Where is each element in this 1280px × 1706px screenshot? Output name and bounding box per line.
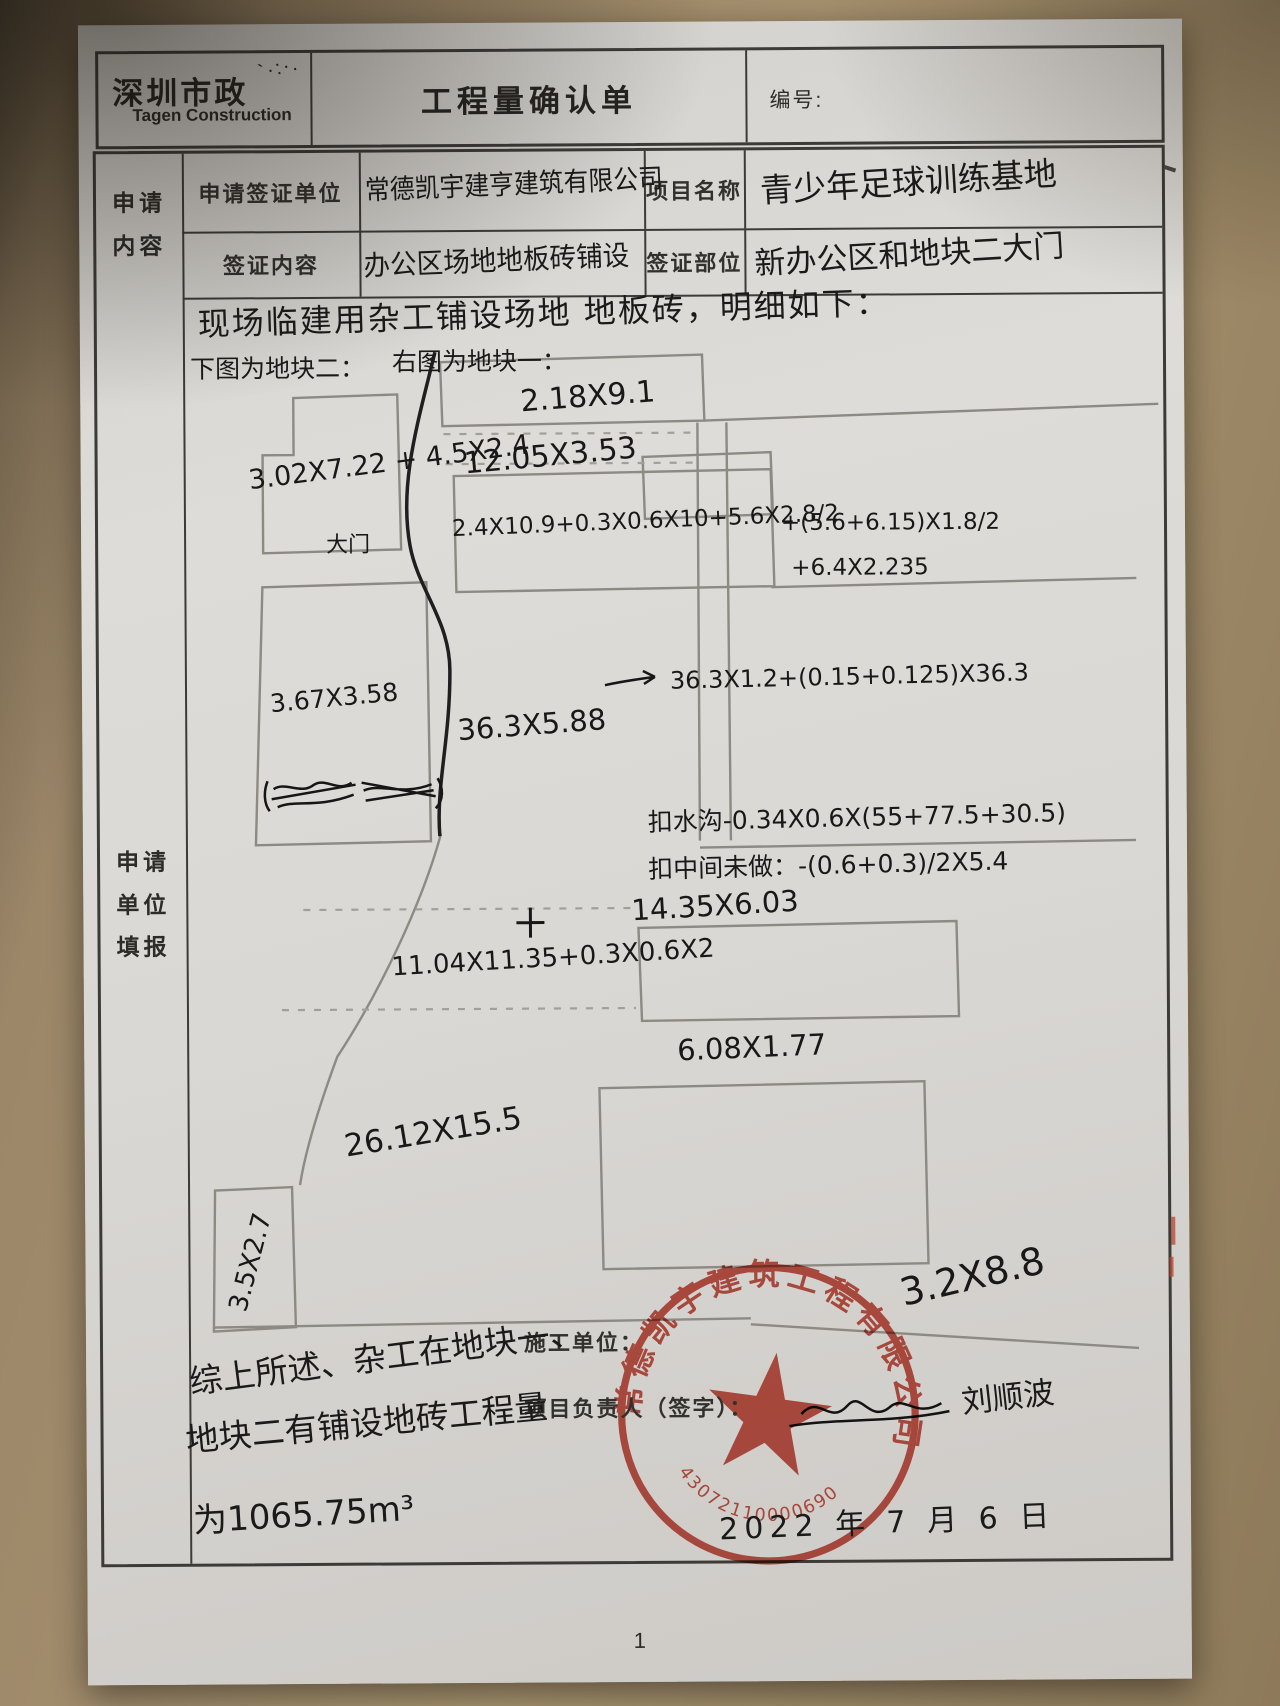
number-cell: 编号: (747, 48, 1162, 143)
right-sketch-label: 右图为地块一： (392, 341, 567, 378)
header-table: 深圳市政 `·:·. Tagen Construction 工程量确认单 编号: (95, 45, 1165, 150)
margin-mark (1164, 165, 1177, 172)
logo-cell: 深圳市政 `·:·. Tagen Construction (98, 53, 313, 146)
visa-location-value: 新办公区和地块二大门 (753, 220, 1065, 283)
dividing-curve-line (406, 352, 451, 836)
dim-block2-c: 3.5X2.7 (224, 1210, 278, 1315)
dim-top: 2.18X9.1 (519, 374, 656, 419)
dim-strip-formula: 36.3X1.2+(0.15+0.125)X36.3 (670, 658, 1030, 694)
dim-mid: 14.35X6.03 (630, 884, 799, 928)
plus-cross-mark (516, 908, 544, 938)
dim-strip: 36.3X5.88 (456, 702, 607, 747)
dim-deduct-ditch: 扣水沟-0.34X0.6X(55+77.5+30.5) (647, 793, 1066, 839)
apply-unit-label: 申请签证单位 (182, 153, 361, 232)
dim-stamp-overlay: 3.2X8.8 (896, 1238, 1049, 1315)
dim-block2-b: 3.67X3.58 (269, 677, 400, 718)
title-cell: 工程量确认单 (312, 50, 748, 145)
dim-deduct-middle: 扣中间未做：-(0.6+0.3)/2X5.4 (648, 841, 1009, 885)
number-label: 编号: (769, 84, 823, 114)
manager-signature: 刘顺波 (959, 1367, 1056, 1422)
dim-lower: 6.08X1.77 (677, 1027, 827, 1067)
logo-text-en: Tagen Construction (132, 105, 291, 126)
conclusion-line-3: 为1065.75m³ (192, 1481, 416, 1543)
fill-section-label: 申请单位填报 (112, 841, 175, 969)
manager-label: 项目负责人（签字）： (524, 1390, 753, 1423)
arrow-icon (605, 671, 655, 685)
page-number: 1 (88, 1625, 1192, 1658)
dim-mid-formula: 11.04X11.35+0.3X0.6X2 (391, 934, 716, 983)
gate-label: 大门 (326, 527, 370, 559)
dim-formula-right2: +6.4X2.235 (791, 554, 929, 581)
main-form-table: 申请内容 申请单位填报 申请签证单位 项目名称 常德凯宇建亨建筑有限公司 青少年… (93, 145, 1174, 1568)
form-row-1: 申请签证单位 项目名称 常德凯宇建亨建筑有限公司 青少年足球训练基地 (182, 148, 1162, 234)
left-section-column: 申请内容 申请单位填报 (96, 154, 193, 1565)
project-name-value: 青少年足球训练基地 (759, 147, 1058, 212)
left-sketch-label: 下图为地块二： (190, 349, 365, 386)
apply-section-label: 申请内容 (108, 182, 171, 267)
application-detail-area: 常德凯宇建筑工程有限公司 43072110000690 现场临建用杂工铺设场地 … (183, 292, 1171, 1564)
dim-block2-a: 3.02X7.22 + 4.5X2.4 (247, 429, 532, 496)
margin-red-mark (1171, 1217, 1175, 1245)
crossed-out-scribble (265, 778, 442, 811)
margin-red-mark (1169, 1257, 1173, 1277)
scanned-document-photo: 深圳市政 `·:·. Tagen Construction 工程量确认单 编号:… (0, 0, 1280, 1706)
visa-content-label: 签证内容 (182, 231, 361, 298)
dim-formula-right: +(5.6+6.15)X1.8/2 (781, 509, 1000, 536)
paper-sheet: 深圳市政 `·:·. Tagen Construction 工程量确认单 编号:… (78, 19, 1192, 1686)
dim-big: 26.12X15.5 (342, 1100, 524, 1165)
page-title: 工程量确认单 (421, 74, 637, 120)
logo-speckle-decoration: `·:·. (256, 52, 302, 84)
